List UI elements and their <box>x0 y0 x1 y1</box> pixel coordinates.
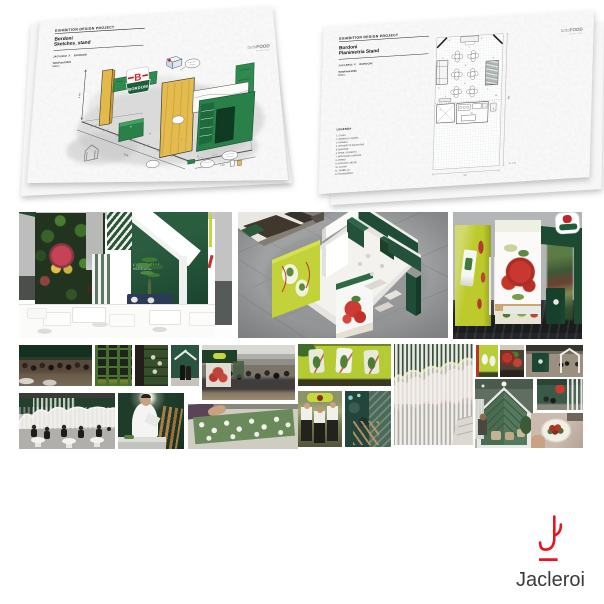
svg-text:Milano: Milano <box>52 65 60 68</box>
svg-text:✕: ✕ <box>353 62 356 66</box>
svg-text:Milano: Milano <box>338 73 346 76</box>
svg-text:1. CASSA: 1. CASSA <box>336 134 346 138</box>
svg-text:4 mt: 4 mt <box>78 93 81 98</box>
svg-text:✕: ✕ <box>68 54 71 58</box>
